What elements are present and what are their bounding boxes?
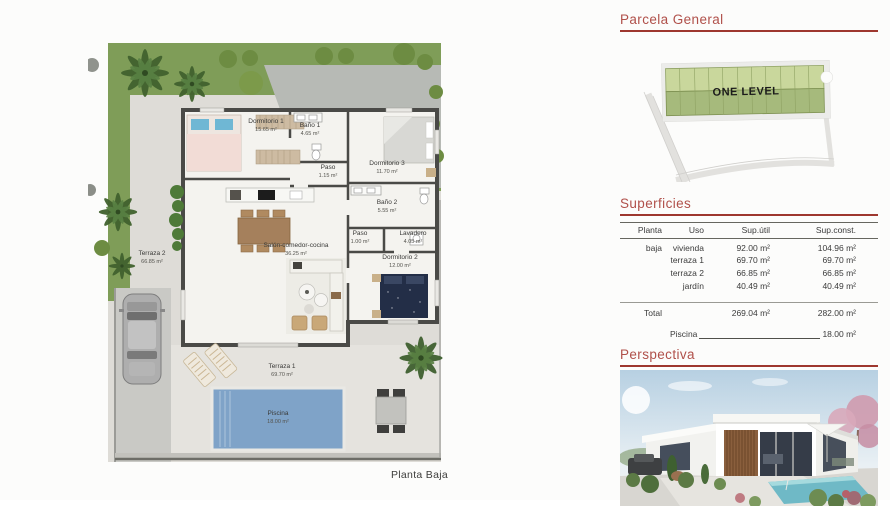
palm-tree: [121, 49, 169, 97]
room-area: 18.00 m²: [267, 419, 289, 426]
col-header: Uso: [664, 225, 716, 236]
cell-uso: vivienda: [664, 243, 716, 254]
room-label-piscina: Piscina18.00 m²: [267, 410, 289, 426]
cell-planta: [620, 255, 664, 266]
areas-table: Planta Uso Sup.útil Sup.const. baja vivi…: [620, 222, 878, 339]
section-rule: [620, 214, 878, 216]
cell-uso: terraza 1: [664, 255, 716, 266]
table-row: terraza 1 69.70 m² 69.70 m²: [620, 254, 878, 267]
room-label-dormitorio3: Dormitorio 311.70 m²: [369, 160, 404, 176]
room-area: 4.05 m²: [399, 239, 426, 246]
room-name: Paso: [351, 230, 370, 239]
room-label-bano1: Baño 14.65 m²: [300, 122, 321, 138]
info-column: Parcela General: [620, 12, 878, 506]
car: [119, 294, 165, 384]
sun-glow: [622, 386, 650, 414]
sofa-set: [286, 258, 346, 334]
kitchen-counter: [226, 188, 314, 202]
room-name: Dormitorio 2: [382, 254, 417, 263]
room-name: Lavadero: [399, 230, 426, 239]
cell-uso: jardín: [664, 281, 716, 292]
room-area: 15.65 m²: [248, 127, 283, 134]
table-row: jardín 40.49 m² 40.49 m²: [620, 280, 878, 293]
floor-plan: Dormitorio 115.65 m² Baño 14.65 m² Paso1…: [88, 40, 444, 470]
parcel-strip: ONE LEVEL: [661, 60, 833, 122]
col-header: Planta: [620, 225, 664, 236]
room-name: Baño 1: [300, 122, 321, 131]
room-area: 1.15 m²: [319, 173, 338, 180]
room-area: 66.85 m²: [138, 259, 165, 266]
room-label-paso2: Paso1.00 m²: [351, 230, 370, 246]
room-area: 69.70 m²: [268, 372, 295, 379]
room-name: Terraza 2: [138, 250, 165, 259]
plan-caption: Planta Baja: [360, 469, 448, 481]
pool-label: Piscina: [670, 329, 697, 339]
bed-dormitorio2: [372, 274, 428, 318]
room-label-terraza1: Terraza 169.70 m²: [268, 363, 295, 379]
cell-const: 104.96 m²: [780, 243, 878, 254]
cell-uso: terraza 2: [664, 268, 716, 279]
cell-util: 69.70 m²: [716, 255, 780, 266]
room-name: Terraza 1: [268, 363, 295, 372]
room-area: 12.00 m²: [382, 263, 417, 270]
room-label-dormitorio1: Dormitorio 115.65 m²: [248, 118, 283, 134]
cell-const: 69.70 m²: [780, 255, 878, 266]
col-header: Sup.útil: [716, 225, 780, 236]
cell-planta: [620, 268, 664, 279]
table-header-row: Planta Uso Sup.útil Sup.const.: [620, 222, 878, 239]
site-plan-drawing: ONE LEVEL: [620, 34, 878, 182]
round-bush: [239, 71, 263, 95]
cell-planta: [620, 281, 664, 292]
section-title-perspectiva: Perspectiva: [620, 347, 878, 362]
col-header: Sup.const.: [780, 225, 878, 236]
total-spacer: [664, 308, 716, 319]
table-total-row: Total 269.04 m² 282.00 m²: [620, 302, 878, 320]
total-util: 269.04 m²: [716, 308, 780, 319]
total-label: Total: [620, 308, 664, 319]
table-row: baja vivienda 92.00 m² 104.96 m²: [620, 242, 878, 255]
cell-util: 40.49 m²: [716, 281, 780, 292]
room-area: 4.65 m²: [300, 131, 321, 138]
parcel-site-plan: ONE LEVEL: [620, 34, 878, 182]
room-label-terraza2: Terraza 266.85 m²: [138, 250, 165, 266]
bed-dormitorio1: [187, 115, 241, 171]
brochure-page: Dormitorio 115.65 m² Baño 14.65 m² Paso1…: [0, 0, 890, 500]
render-drawing: [620, 370, 878, 506]
cell-util: 92.00 m²: [716, 243, 780, 254]
room-label-salon: Salón-comedor-cocina36.25 m²: [263, 242, 328, 258]
room-name: Salón-comedor-cocina: [263, 242, 328, 251]
room-area: 11.70 m²: [369, 169, 404, 176]
room-name: Paso: [319, 164, 338, 173]
section-title-parcela: Parcela General: [620, 12, 878, 27]
pool-area-row: Piscina 18.00 m²: [620, 329, 878, 339]
section-rule: [620, 365, 878, 367]
cell-util: 66.85 m²: [716, 268, 780, 279]
room-area: 1.00 m²: [351, 239, 370, 246]
cell-const: 66.85 m²: [780, 268, 878, 279]
palm-tree: [399, 336, 442, 379]
cell-const: 40.49 m²: [780, 281, 878, 292]
room-label-paso1: Paso1.15 m²: [319, 164, 338, 180]
palm-tree: [99, 193, 137, 231]
room-area: 36.25 m²: [263, 251, 328, 258]
parcel-label: ONE LEVEL: [712, 85, 779, 98]
perspective-render: [620, 370, 878, 506]
room-label-lavadero: Lavadero4.05 m²: [399, 230, 426, 246]
room-label-dormitorio2: Dormitorio 212.00 m²: [382, 254, 417, 270]
room-name: Dormitorio 3: [369, 160, 404, 169]
total-const: 282.00 m²: [780, 308, 878, 319]
room-area: 5.55 m²: [377, 208, 398, 215]
palm-tree: [174, 66, 210, 102]
section-title-superficies: Superficies: [620, 196, 878, 211]
patio-chairs: [832, 458, 854, 466]
table-row: terraza 2 66.85 m² 66.85 m²: [620, 267, 878, 280]
pool-value: 18.00 m²: [822, 329, 878, 339]
cell-planta: baja: [620, 243, 664, 254]
leader-line: [699, 330, 820, 339]
palm-tree: [109, 253, 135, 279]
room-name: Baño 2: [377, 199, 398, 208]
section-rule: [620, 30, 878, 32]
room-name: Piscina: [267, 410, 289, 419]
room-name: Dormitorio 1: [248, 118, 283, 127]
room-label-bano2: Baño 25.55 m²: [377, 199, 398, 215]
